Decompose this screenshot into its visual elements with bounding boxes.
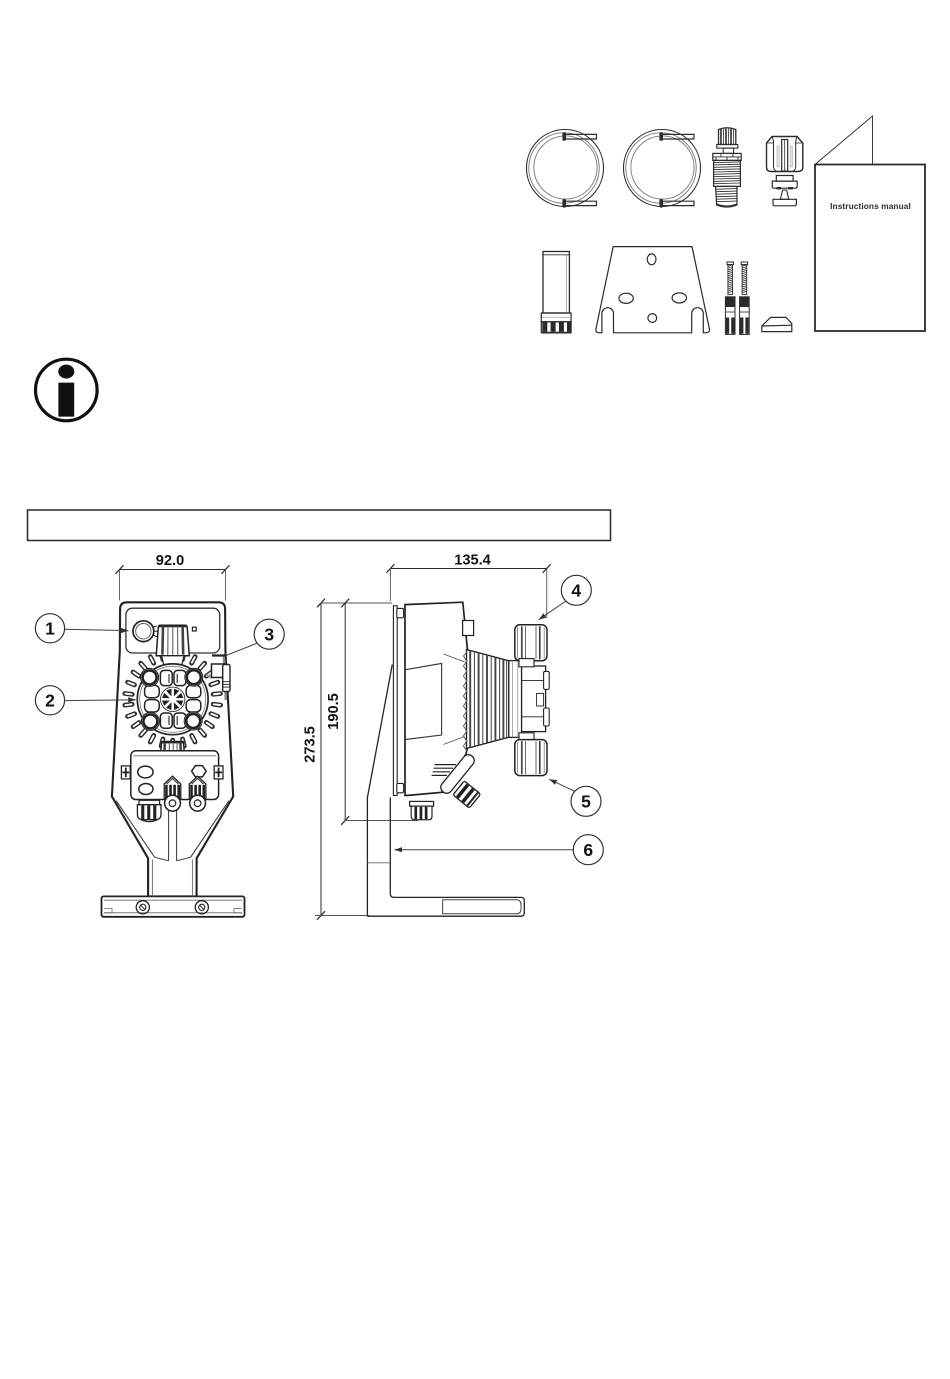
svg-text:273.5: 273.5 bbox=[303, 726, 319, 763]
svg-text:135.4: 135.4 bbox=[454, 553, 491, 569]
svg-text:1: 1 bbox=[45, 619, 55, 639]
svg-text:4: 4 bbox=[571, 581, 581, 601]
svg-text:2: 2 bbox=[45, 691, 55, 711]
svg-text:5: 5 bbox=[581, 792, 591, 812]
svg-text:Instructions manual: Instructions manual bbox=[830, 201, 911, 211]
svg-text:3: 3 bbox=[264, 624, 274, 644]
svg-text:6: 6 bbox=[583, 840, 593, 860]
svg-text:190.5: 190.5 bbox=[326, 693, 342, 730]
svg-text:92.0: 92.0 bbox=[156, 553, 184, 569]
